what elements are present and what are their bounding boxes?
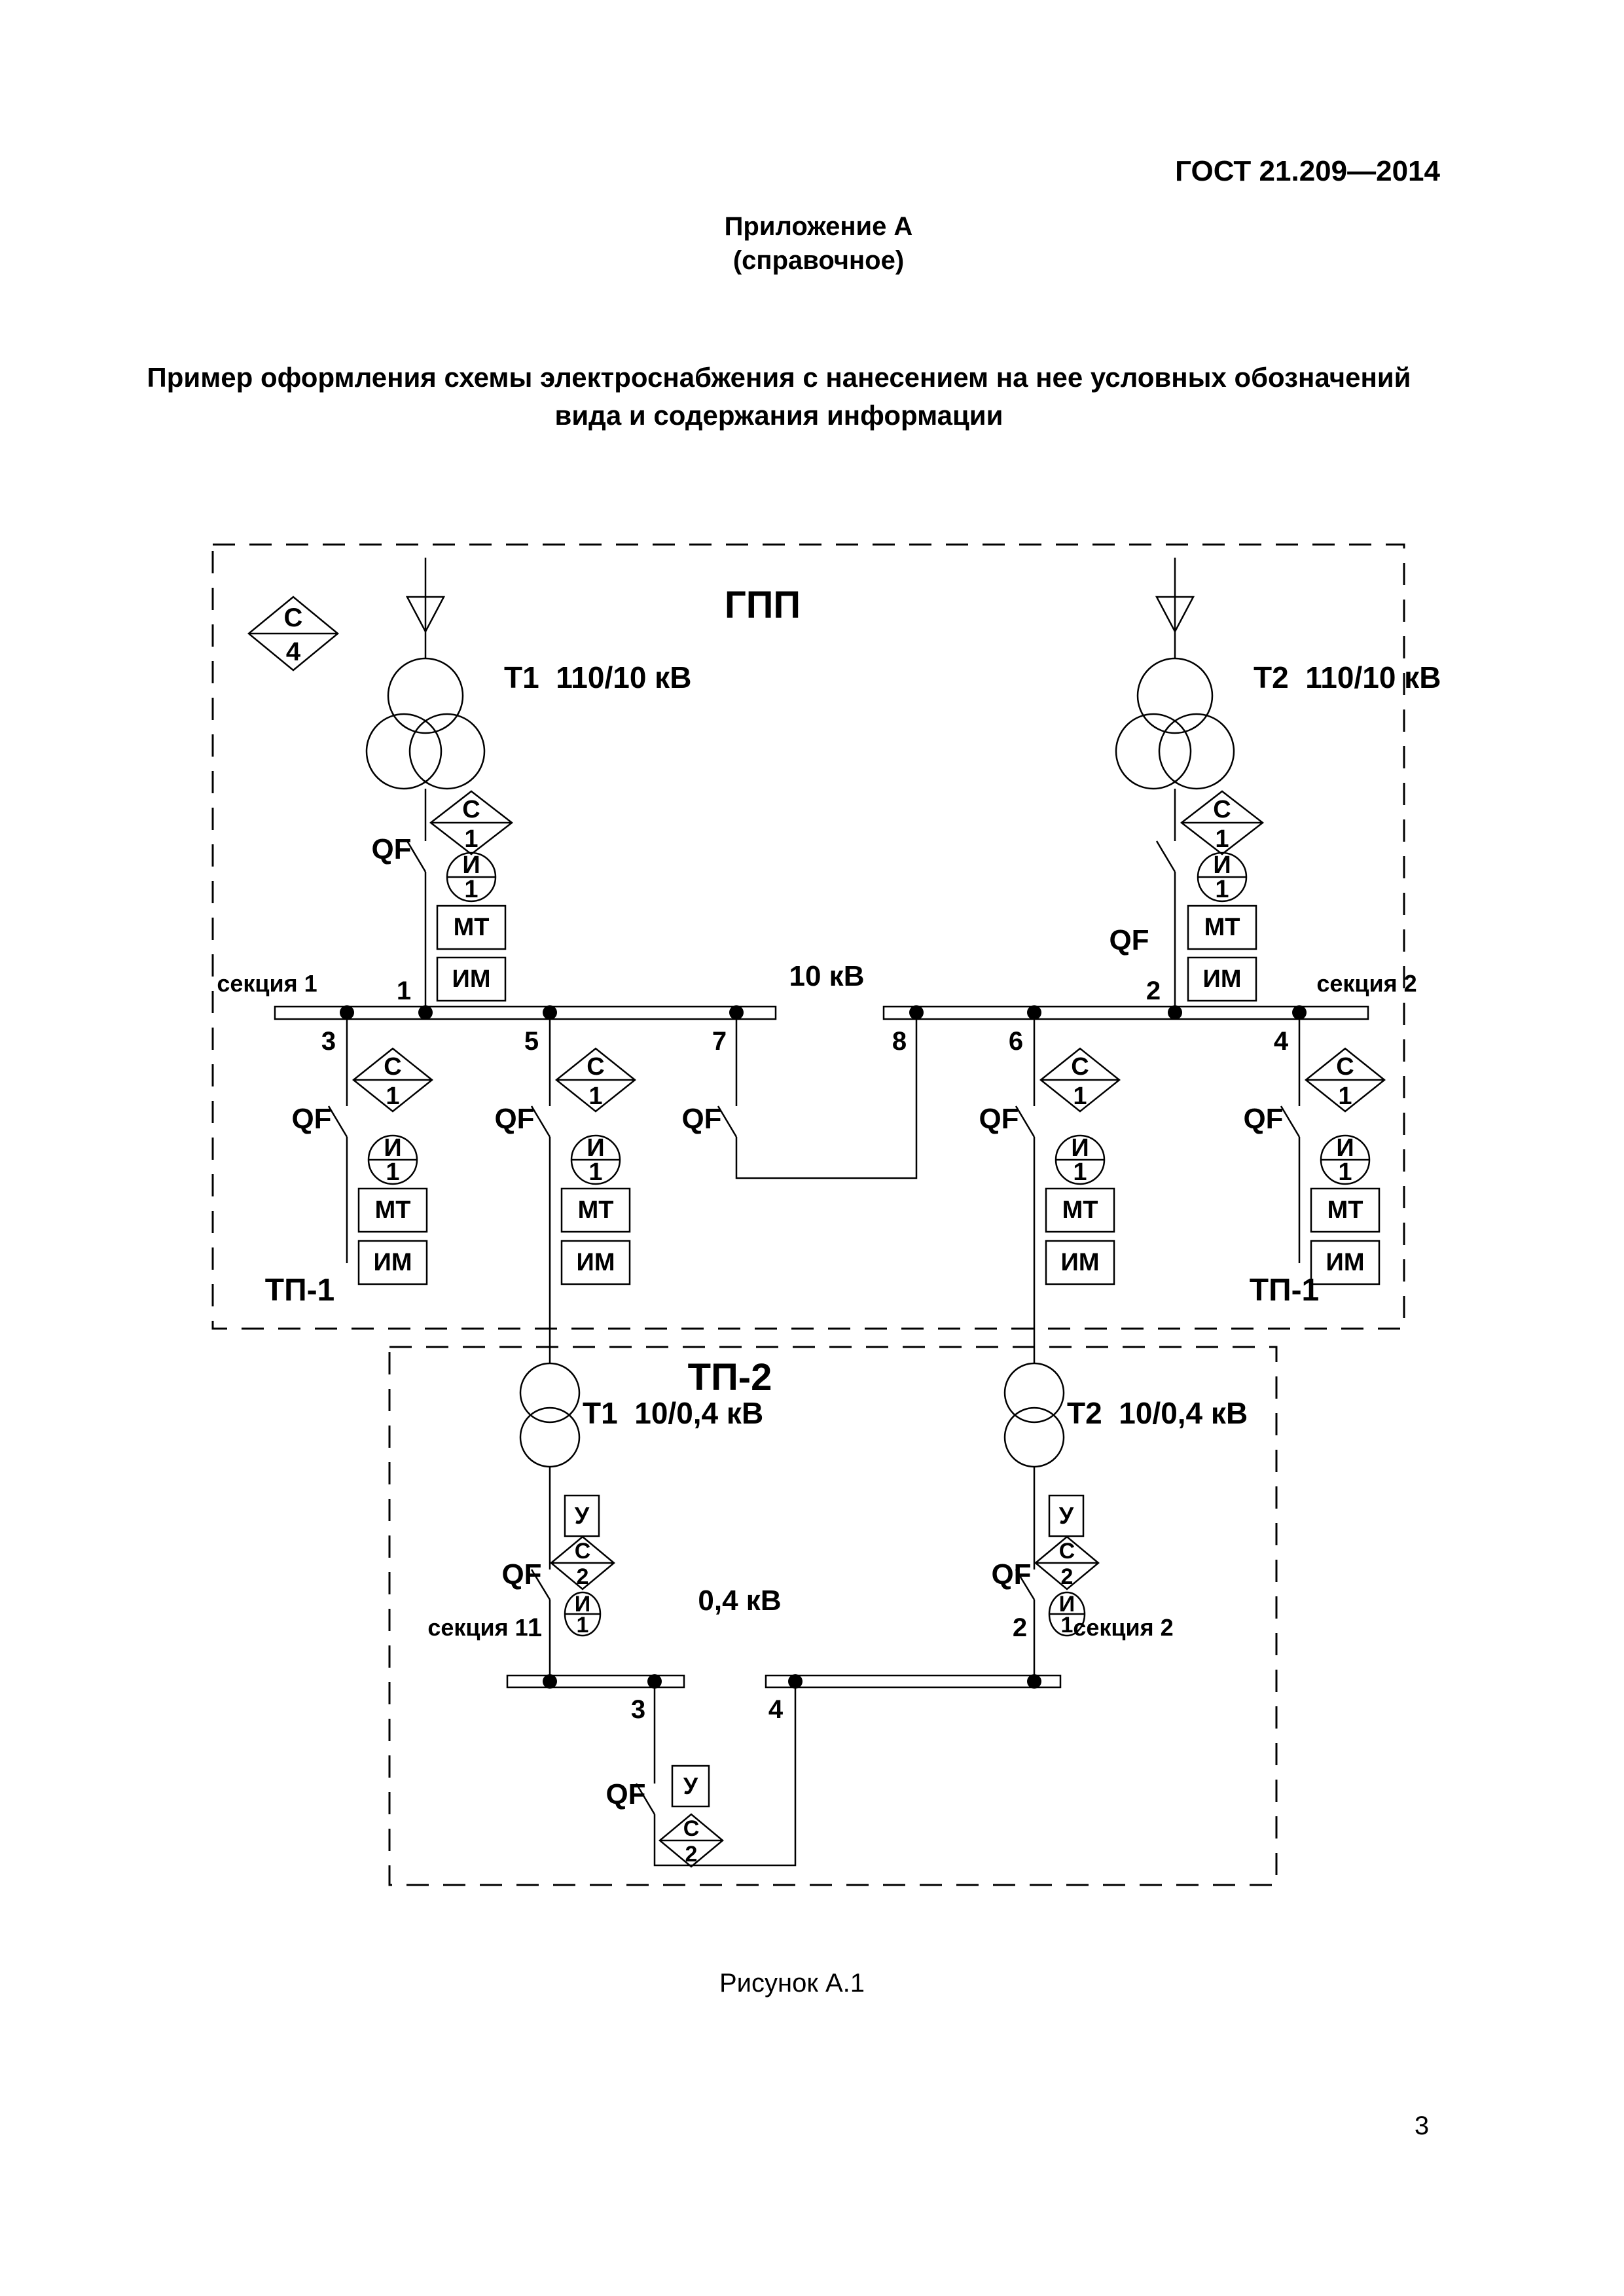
tp2-t2-circle-number: 1 <box>1061 1614 1074 1636</box>
feeder5-circle-letter: И <box>586 1136 604 1160</box>
t1-mt-label: МТ <box>454 915 490 940</box>
tp2-node-3-number: 3 <box>631 1696 645 1723</box>
schematic-drawing <box>0 0 1624 2296</box>
tp2-t1-circle-letter: И <box>575 1593 590 1615</box>
tp1-left-label: ТП-1 <box>265 1275 335 1306</box>
page-title-line1: Пример оформления схемы электроснабжения… <box>26 364 1532 391</box>
node-7-number: 7 <box>712 1028 727 1054</box>
t1-diamond-number: 1 <box>464 827 478 852</box>
diamond-s4-number: 4 <box>286 639 300 665</box>
tie04-u-label: У <box>683 1774 698 1798</box>
tp2-t2-breaker-label: QF <box>991 1560 1031 1589</box>
tp2-t1-diamond-letter: С <box>575 1540 591 1562</box>
tp2-t2-transformer-icon <box>1005 1363 1064 1422</box>
document-page: ГОСТ 21.209—2014 Приложение А (справочно… <box>0 0 1624 2296</box>
tp2-t1-u-label: У <box>575 1504 589 1528</box>
tp2-t1-circle-number: 1 <box>577 1614 589 1636</box>
t2-breaker-label: QF <box>1109 926 1149 955</box>
standard-number: ГОСТ 21.209—2014 <box>1106 157 1440 186</box>
feeder3-breaker-label: QF <box>291 1105 331 1134</box>
feeder4-diamond-number: 1 <box>1338 1084 1352 1109</box>
feeder4-circle-number: 1 <box>1338 1160 1352 1185</box>
feeder6-circle-letter: И <box>1071 1136 1089 1160</box>
tp2-t2-transformer-icon <box>1005 1408 1064 1467</box>
busbar-04kv-section2 <box>766 1676 1060 1687</box>
tp2-node-1-number: 1 <box>528 1615 542 1641</box>
t2-circle-number: 1 <box>1215 877 1229 902</box>
t2-breaker-blade-icon <box>1157 841 1175 872</box>
t2-diamond-letter: С <box>1213 797 1231 822</box>
feeder5-line <box>532 1019 550 1363</box>
feeder4-diamond-letter: С <box>1336 1054 1354 1079</box>
diamond-s4-letter: С <box>284 605 303 631</box>
t2-circle-letter: И <box>1213 853 1231 878</box>
tp2-t1-transformer-icon <box>520 1408 579 1467</box>
gpp-title: ГПП <box>725 586 801 624</box>
node-1-number: 1 <box>397 978 411 1004</box>
feeder4-im-label: ИМ <box>1326 1250 1365 1275</box>
feeder4-mt-label: МТ <box>1327 1198 1363 1223</box>
appendix-heading: Приложение А <box>13 213 1624 240</box>
tp2-node-2-number: 2 <box>1013 1615 1027 1641</box>
t2-mt-label: МТ <box>1204 915 1240 940</box>
appendix-note: (справочное) <box>13 247 1624 274</box>
feeder6-diamond-number: 1 <box>1073 1084 1087 1109</box>
t1-circle-letter: И <box>462 853 480 878</box>
feeder3-circle-number: 1 <box>386 1160 399 1185</box>
feeder4-circle-letter: И <box>1336 1136 1354 1160</box>
tp2-section1-label: секция 1 <box>427 1616 528 1640</box>
tp2-t1-transformer-icon <box>520 1363 579 1422</box>
feeder6-diamond-letter: С <box>1071 1054 1089 1079</box>
node-3-number: 3 <box>321 1028 336 1054</box>
figure-caption: Рисунок А.1 <box>719 1970 865 1996</box>
tp2-t1-breaker-label: QF <box>501 1560 541 1589</box>
voltage-10kv-label: 10 кВ <box>789 962 865 991</box>
t1-im-label: ИМ <box>452 967 491 992</box>
tp2-t1-diamond-number: 2 <box>577 1566 589 1588</box>
feeder6-line <box>1016 1019 1034 1363</box>
feeder3-mt-label: МТ <box>375 1198 411 1223</box>
tp2-section2-label: секция 2 <box>1073 1616 1173 1640</box>
tp2-t2-diamond-letter: С <box>1059 1540 1075 1562</box>
node-6-number: 6 <box>1009 1028 1023 1054</box>
feeder5-im-label: ИМ <box>577 1250 615 1275</box>
feeder6-mt-label: МТ <box>1062 1198 1098 1223</box>
t1-breaker-label: QF <box>371 835 411 864</box>
tp2-t2-u-label: У <box>1059 1504 1074 1528</box>
feeder5-circle-number: 1 <box>588 1160 602 1185</box>
bus-tie-breaker-label: QF <box>681 1105 721 1134</box>
feeder3-im-label: ИМ <box>374 1250 412 1275</box>
tp2-t2-transformer-label: Т2 10/0,4 кВ <box>1067 1398 1248 1428</box>
t1-transformer-label: Т1 110/10 кВ <box>504 662 691 692</box>
tp2-t2-diamond-number: 2 <box>1061 1566 1074 1588</box>
node-8-number: 8 <box>892 1028 907 1054</box>
tp2-t2-circle-letter: И <box>1059 1593 1075 1615</box>
t1-diamond-letter: С <box>462 797 480 822</box>
t1-circle-number: 1 <box>464 877 478 902</box>
t2-transformer-label: Т2 110/10 кВ <box>1254 662 1441 692</box>
feeder6-circle-number: 1 <box>1073 1160 1087 1185</box>
node-2-number: 2 <box>1146 978 1161 1004</box>
bus-tie-10kv-line <box>718 1019 916 1178</box>
section1-label: секция 1 <box>217 972 317 996</box>
feeder6-breaker-label: QF <box>979 1105 1019 1134</box>
page-number: 3 <box>1415 2113 1429 2139</box>
t2-im-label: ИМ <box>1203 967 1242 992</box>
page-title-line2: вида и содержания информации <box>26 402 1532 429</box>
tie04-diamond-letter: С <box>683 1818 700 1840</box>
node-4-number: 4 <box>1274 1028 1288 1054</box>
node-5-number: 5 <box>524 1028 539 1054</box>
tp1-right-label: ТП-1 <box>1250 1275 1320 1306</box>
t2-diamond-number: 1 <box>1215 827 1229 852</box>
feeder5-mt-label: МТ <box>578 1198 614 1223</box>
feeder3-diamond-number: 1 <box>386 1084 399 1109</box>
tp2-node-4-number: 4 <box>768 1696 783 1723</box>
section2-label: секция 2 <box>1316 972 1416 996</box>
feeder5-diamond-letter: С <box>586 1054 604 1079</box>
feeder3-diamond-letter: С <box>384 1054 401 1079</box>
tp2-title: ТП-2 <box>688 1359 772 1397</box>
tie04-diamond-number: 2 <box>685 1843 698 1865</box>
feeder3-circle-letter: И <box>384 1136 401 1160</box>
feeder5-breaker-label: QF <box>494 1105 534 1134</box>
feeder5-diamond-number: 1 <box>588 1084 602 1109</box>
feeder4-breaker-label: QF <box>1243 1105 1283 1134</box>
feeder6-im-label: ИМ <box>1061 1250 1100 1275</box>
tp2-t1-transformer-label: Т1 10/0,4 кВ <box>583 1398 763 1428</box>
voltage-04kv-label: 0,4 кВ <box>698 1587 781 1615</box>
tie04-breaker-label: QF <box>605 1780 645 1809</box>
